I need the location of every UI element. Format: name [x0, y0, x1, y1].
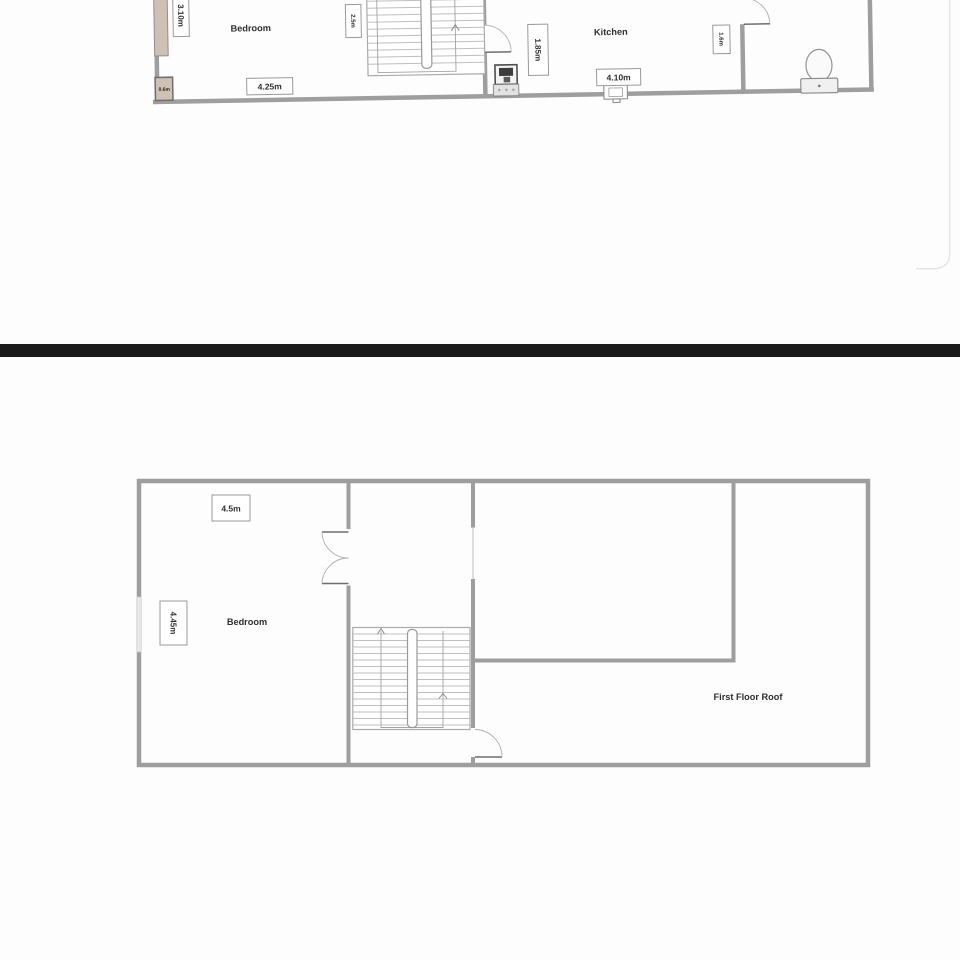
window-icon [137, 597, 141, 652]
floorplan-page: 0.6m [0, 0, 960, 960]
dim-label-bedroom-height: 3.10m [176, 4, 185, 27]
room-label-kitchen: Kitchen [594, 27, 628, 38]
window-icon [154, 0, 169, 56]
dim-label-wc: 1.6m [717, 32, 723, 46]
room-label-bedroom-upper: Bedroom [230, 23, 270, 34]
upper-floorplan[interactable]: 0.6m [151, 0, 874, 111]
door-icon [485, 25, 511, 52]
dim-label-bedroom-height-lower: 4.45m [169, 612, 178, 635]
room-label-first-floor-roof: First Floor Roof [714, 692, 784, 702]
room-label-bedroom-lower: Bedroom [227, 617, 267, 627]
boiler-icon [493, 65, 519, 96]
toilet-icon [800, 49, 838, 93]
staircase-icon [366, 0, 485, 76]
dim-label-kitchen-width: 4.10m [607, 72, 632, 82]
divider-bar [0, 344, 960, 357]
dim-label-bedroom-width: 4.25m [258, 81, 283, 91]
dim-label-stairs: 2.5m [349, 14, 355, 28]
lower-floorplan[interactable]: 4.5m 4.45m Bedroom First Floor Roof [137, 481, 868, 765]
door-icon [475, 730, 502, 758]
staircase-icon [353, 628, 470, 730]
cupboard-icon: 0.6m [155, 77, 173, 100]
double-door-icon [322, 532, 349, 584]
dim-label-cupboard: 0.6m [159, 87, 171, 93]
sink-icon [604, 85, 628, 103]
dim-label-bedroom-width-lower: 4.5m [221, 504, 241, 514]
dim-label-kitchen-height: 1.85m [533, 38, 542, 61]
page-corner-edge [916, 0, 950, 269]
floorplan-canvas: 0.6m [0, 0, 960, 960]
door-icon [743, 0, 770, 24]
